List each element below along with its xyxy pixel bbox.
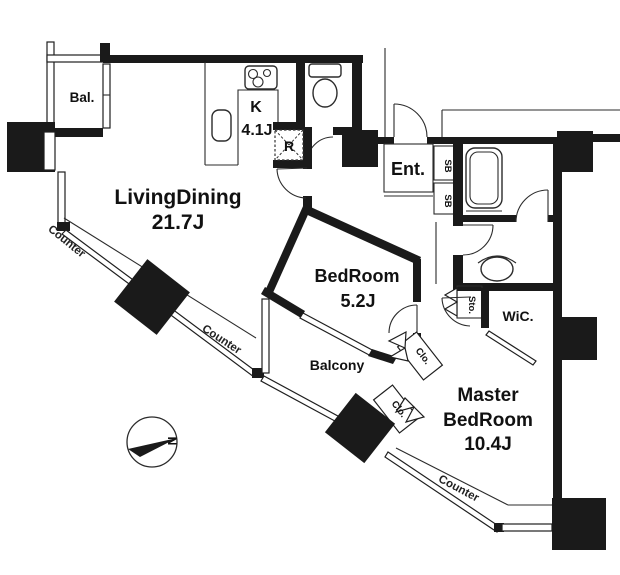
hall-partition: [277, 168, 312, 208]
front-door-arc: [394, 104, 427, 137]
wic-label: WiC.: [503, 308, 534, 324]
washroom-door-arc: [463, 225, 493, 255]
master-bedroom-label-2: BedRoom: [443, 410, 533, 431]
storage-wic: [442, 286, 562, 385]
stove-icon: [245, 66, 277, 89]
bathtub-icon: [466, 148, 502, 211]
entrance-label: Ent.: [391, 159, 425, 179]
refrigerator-label: R: [284, 138, 294, 154]
storage-label: Sto.: [466, 296, 477, 314]
washbasin-icon: [478, 256, 516, 281]
living-dining-label: LivingDining: [114, 186, 241, 209]
compass-north-label: N: [165, 437, 179, 446]
bathroom-washroom: [436, 143, 562, 291]
floorplan-canvas: N LivingDining 21.7J K 4.1J R Bal. Ent. …: [0, 0, 620, 575]
pillar-living-diagonal: [114, 259, 190, 335]
window-band: [57, 172, 552, 532]
kitchen-area: [205, 62, 278, 165]
kitchen-area-label: 4.1J: [241, 122, 272, 139]
floorplan-drawing: N LivingDining 21.7J K 4.1J R Bal. Ent. …: [0, 0, 620, 575]
shoe-box-1-label: SB: [442, 159, 453, 172]
small-balcony-label: Bal.: [70, 90, 95, 105]
north-wall: [103, 55, 363, 63]
compass-icon: N: [127, 417, 179, 467]
bedroom-balcony-window: [300, 313, 374, 356]
sink-icon: [212, 110, 231, 141]
bedroom-area-label: 5.2J: [340, 291, 375, 311]
toilet-icon: [309, 64, 341, 107]
bedroom-door-arc: [389, 305, 417, 333]
pillars: [7, 122, 620, 550]
bedroom-label: BedRoom: [315, 266, 400, 286]
balcony-label: Balcony: [310, 357, 365, 373]
master-bedroom-label-1: Master: [457, 385, 519, 406]
kitchen-label: K: [250, 99, 262, 116]
hall-door-arc: [277, 169, 306, 198]
master-bedroom-area: 10.4J: [464, 434, 512, 455]
living-dining-area: 21.7J: [152, 211, 205, 234]
site-boundary-lines: [385, 48, 620, 137]
pillar-east-mid: [555, 317, 597, 360]
pillar-southeast: [552, 498, 606, 550]
pillar-northeast: [557, 131, 593, 172]
shoe-box-2-label: SB: [442, 194, 453, 207]
wic-sliding-door: [486, 331, 536, 365]
bathroom-door-arc: [516, 190, 548, 222]
